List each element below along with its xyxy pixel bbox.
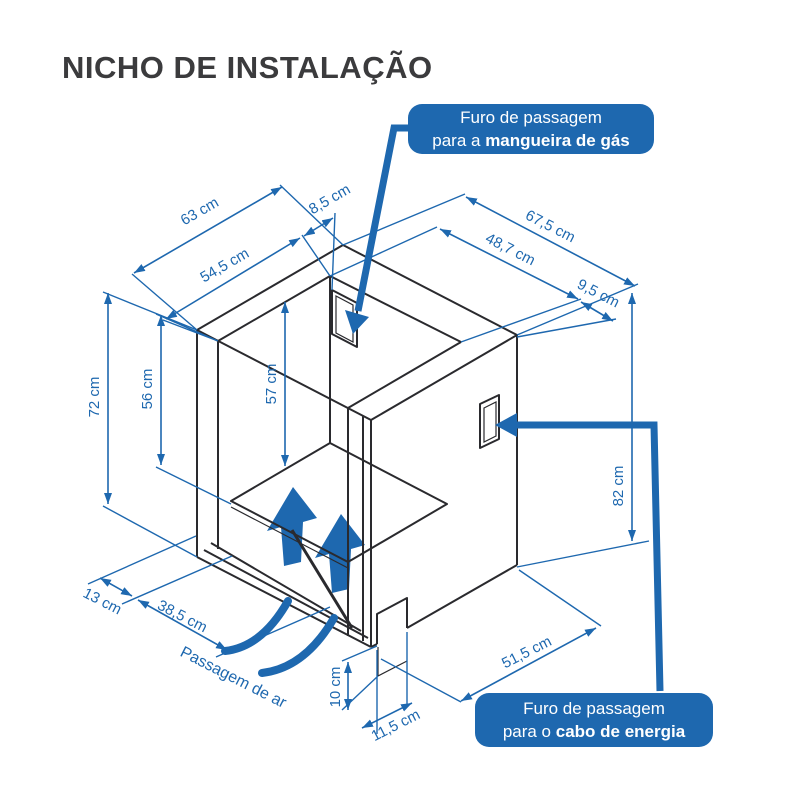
dimension-label: 72 cm bbox=[86, 377, 103, 418]
installation-diagram: 63 cm54,5 cm8,5 cm67,5 cm48,7 cm9,5 cm72… bbox=[0, 0, 800, 800]
dimension-label: 8,5 cm bbox=[306, 181, 353, 218]
dimension-label: 57 cm bbox=[263, 364, 280, 405]
dimension-51-5-cm bbox=[461, 628, 596, 701]
dimension-label: Passagem de ar bbox=[177, 644, 289, 712]
notch bbox=[377, 598, 407, 644]
dimension-label: 13 cm bbox=[80, 585, 124, 619]
cable-hole-inner bbox=[484, 402, 496, 442]
dimension-label: 54,5 cm bbox=[197, 245, 252, 286]
dimension-label: 10 cm bbox=[327, 667, 344, 708]
dimension-label: 56 cm bbox=[139, 369, 156, 410]
callout-gas-line1: Furo de passagem bbox=[414, 106, 648, 129]
dimension-label: 67,5 cm bbox=[523, 207, 578, 246]
dimension-label: 63 cm bbox=[178, 194, 222, 229]
dimension-label: 38,5 cm bbox=[155, 597, 210, 636]
dimension-label: 82 cm bbox=[610, 466, 627, 507]
outer-edges bbox=[197, 330, 517, 647]
air-swoosh-1 bbox=[225, 601, 288, 651]
dimension-8-5-cm bbox=[304, 218, 333, 236]
callout-power-cable: Furo de passagem para o cabo de energia bbox=[475, 693, 713, 747]
callout-gas-line2: para a mangueira de gás bbox=[414, 129, 648, 152]
air-arrow-up-1 bbox=[267, 487, 317, 566]
callout-power-line2: para o cabo de energia bbox=[481, 720, 707, 743]
page: NICHO DE INSTALAÇÃO bbox=[0, 0, 800, 800]
air-up-arrows bbox=[267, 487, 365, 593]
callout-power-line1: Furo de passagem bbox=[481, 697, 707, 720]
dimension-layer: 63 cm54,5 cm8,5 cm67,5 cm48,7 cm9,5 cm72… bbox=[80, 181, 635, 745]
notch-inner-lines bbox=[378, 647, 407, 676]
dimension-line bbox=[461, 628, 596, 701]
dimension-line bbox=[304, 218, 333, 236]
dimension-label: 9,5 cm bbox=[574, 276, 622, 312]
dimension-label: 48,7 cm bbox=[483, 230, 538, 269]
callout-gas-hose: Furo de passagem para a mangueira de gás bbox=[408, 104, 654, 154]
